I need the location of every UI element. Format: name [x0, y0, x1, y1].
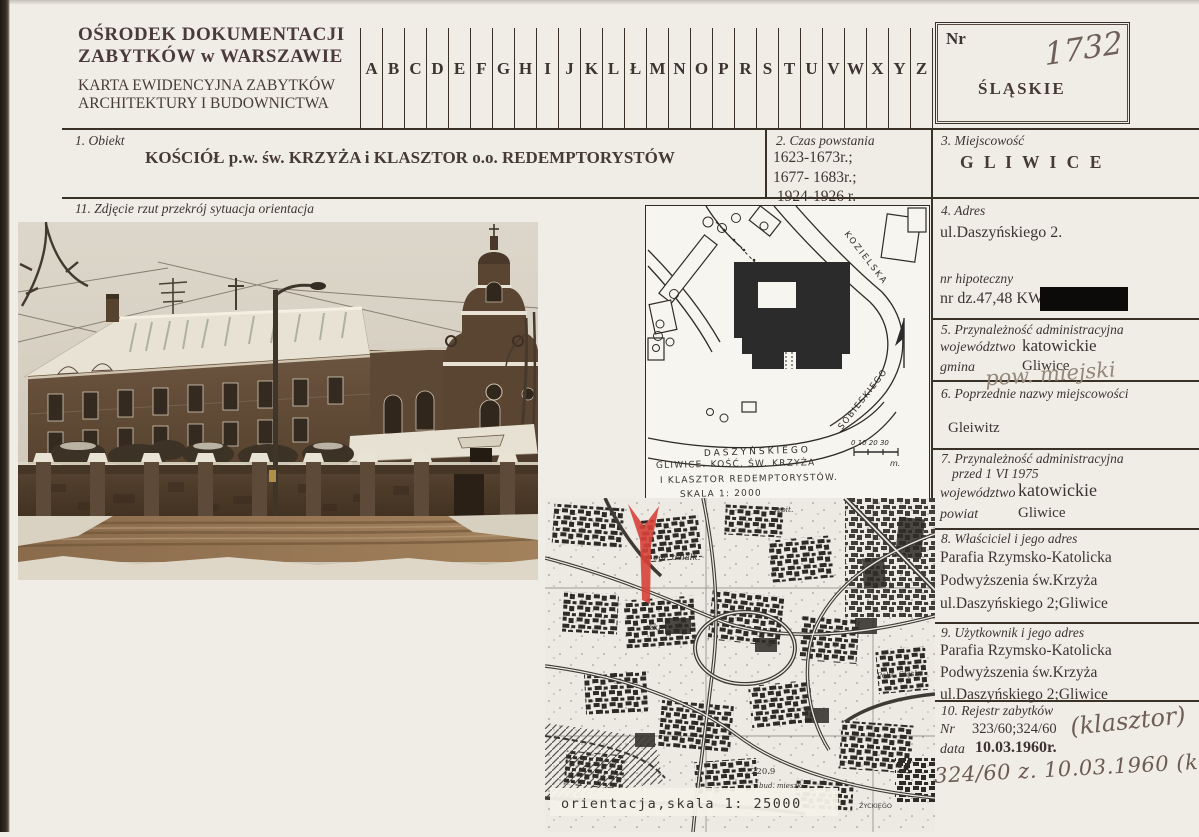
handwritten-kosciol-note: 324/60 z. 10.03.1960 (kościół) [934, 746, 1199, 788]
nr-label: Nr [946, 29, 966, 49]
scale-unit-label: m. [890, 459, 900, 468]
alphabet-letter: R [734, 28, 756, 128]
site-plan-drawing: 0 10 20 30 m. KOZIELSKA DASZYŃSKIEGO SOB… [646, 206, 928, 499]
alphabet-letter: C [404, 28, 426, 128]
photo-church-winter [18, 222, 538, 580]
section1-label: 1. Obiekt [75, 133, 125, 149]
section2-label: 2. Czas powstania [776, 133, 875, 149]
gate-opening [454, 474, 484, 516]
rule-under-row1 [62, 197, 1199, 199]
plan-scale-bar: 0 10 20 30 m. [851, 439, 900, 468]
owner-line: Podwyższenia św.Krzyża [940, 569, 1112, 592]
voivodeship-label-s7: województwo [940, 486, 1015, 502]
alphabet-letter: M [646, 28, 668, 128]
alphabet-letter: J [558, 28, 580, 128]
map-label-hospital: szpit. [773, 505, 793, 514]
user-lines: Parafia Rzymsko-KatolickaPodwyższenia św… [940, 640, 1112, 706]
alphabet-letter: O [690, 28, 712, 128]
rule-under-header [62, 128, 1199, 130]
voivodeship-value-s5: katowickie [1022, 336, 1097, 356]
orientation-map: ogr. dzialk. szk. szpit. Polit. Śląska 2… [545, 498, 935, 832]
section6-label: 6. Poprzednie nazwy miejscowości [941, 386, 1128, 402]
date-range-line: 1924-1926 r. [773, 187, 857, 207]
card-type-line2: ARCHITEKTURY I BUDOWNICTWA [78, 95, 368, 113]
register-nr-value: 323/60;324/60 [972, 721, 1057, 738]
alphabet-letter: Z [910, 28, 933, 128]
card-number-box: Nr 1732 ŚLĄSKIE [935, 22, 1130, 124]
site-plan: 0 10 20 30 m. KOZIELSKA DASZYŃSKIEGO SOB… [645, 205, 930, 501]
section11-label: 11. Zdjęcie rzut przekrój sytuacja orien… [75, 201, 314, 217]
map-label-street: ŻYCKIEGO [859, 801, 892, 810]
facade-snow-ledge [443, 362, 538, 366]
user-line: Parafia Rzymsko-Katolicka [940, 640, 1112, 662]
map-label-school: szk. [645, 623, 661, 632]
user-line: Podwyższenia św.Krzyża [940, 662, 1112, 684]
scale-ticks-label: 0 10 20 30 [851, 439, 889, 447]
alphabet-letter: P [712, 28, 734, 128]
section2-dates: 1623-1673r.;1677- 1683r.; 1924-1926 r. [773, 148, 857, 207]
alphabet-letter: W [844, 28, 866, 128]
divider-s8-s9 [931, 622, 1199, 624]
oculus-window [486, 384, 502, 400]
map-label-allotments: ogr. dzialk. [653, 553, 700, 563]
handwritten-klasztor: (klasztor) [1069, 701, 1187, 741]
card-type-line1: KARTA EWIDENCYJNA ZABYTKÓW [78, 77, 368, 95]
address-value: ul.Daszyńskiego 2. [940, 224, 1062, 242]
mortgage-label: nr hipoteczny [940, 271, 1013, 287]
section4-label: 4. Adres [941, 203, 985, 219]
object-title: KOŚCIÓŁ p.w. św. KRZYŻA i KLASZTOR o.o. … [120, 148, 700, 168]
alphabet-index-strip: ABCDEFGHIJKLŁMNOPRSTUVWXYZ [360, 28, 933, 128]
tower-lantern [490, 236, 498, 250]
section9-label: 9. Użytkownik i jego adres [941, 625, 1084, 641]
org-line2: ZABYTKÓW w WARSZAWIE [78, 46, 368, 68]
alphabet-letter: F [470, 28, 492, 128]
section8-label: 8. Właściciel i jego adres [941, 531, 1077, 547]
alphabet-letter: N [668, 28, 690, 128]
alphabet-letter: B [382, 28, 404, 128]
redaction-box [1040, 287, 1128, 311]
street-label-daszynskiego: DASZYŃSKIEGO [704, 443, 811, 459]
alphabet-letter: U [800, 28, 822, 128]
header-org-block: OŚRODEK DOKUMENTACJI ZABYTKÓW w WARSZAWI… [78, 24, 368, 113]
district-label: powiat [940, 507, 978, 523]
alphabet-letter: S [756, 28, 778, 128]
divider-s6-s7 [931, 448, 1199, 450]
owner-line: ul.Daszyńskiego 2;Gliwice [940, 592, 1112, 615]
org-line1: OŚRODEK DOKUMENTACJI [78, 24, 368, 46]
alphabet-letter: T [778, 28, 800, 128]
divider-s7-s8 [931, 528, 1199, 530]
divider-s1-s2 [765, 128, 767, 197]
orientation-map-drawing: ogr. dzialk. szk. szpit. Polit. Śląska 2… [545, 498, 935, 832]
locality-value: G L I W I C E [960, 152, 1104, 173]
alphabet-letter: D [426, 28, 448, 128]
register-nr-label: Nr [940, 722, 955, 738]
voivodeship-value-s7: katowickie [1018, 480, 1097, 501]
alphabet-letter: G [492, 28, 514, 128]
alphabet-letter: E [448, 28, 470, 128]
alphabet-letter: I [536, 28, 558, 128]
alphabet-letter: X [866, 28, 888, 128]
plan-building-footprint [734, 262, 850, 369]
divider-s4-s5 [931, 318, 1199, 320]
district-value: Gliwice [1018, 505, 1065, 522]
tower-niche [486, 282, 502, 302]
chimney-cap [106, 294, 119, 299]
plan-caption-line2: I KLASZTOR REDEMPTORYSTÓW. [660, 471, 838, 486]
heritage-record-card: { "header": { "org_line1": "OŚRODEK DOKU… [0, 0, 1199, 832]
commune-label: gmina [940, 360, 975, 376]
plan-caption: GLIWICE. KOŚĆ. ŚW. KRZYŻA I KLASZTOR RED… [656, 456, 838, 499]
plan-caption-line1: GLIWICE. KOŚĆ. ŚW. KRZYŻA [656, 456, 816, 471]
scan-edge-top [0, 0, 1199, 5]
owner-line: Parafia Rzymsko-Katolicka [940, 546, 1112, 569]
register-date-label: data [940, 742, 965, 758]
section3-label: 3. Miejscowość [941, 133, 1024, 149]
alphabet-letter: K [580, 28, 602, 128]
register-date-value: 10.03.1960r. [975, 739, 1057, 757]
map-label-elevation2: 220.9 [751, 767, 775, 777]
photo-illustration [18, 222, 538, 580]
nr-value-handwritten: 1732 [1044, 25, 1124, 73]
alphabet-letter: Ł [624, 28, 646, 128]
alphabet-letter: L [602, 28, 624, 128]
section10-label: 10. Rejestr zabytków [941, 703, 1053, 719]
alphabet-letter: Y [888, 28, 910, 128]
map-caption: orientacja,skala 1: 25000 [561, 796, 802, 812]
date-range-line: 1623-1673r.; [773, 148, 857, 168]
previous-name-value: Gleiwitz [948, 420, 1000, 437]
owner-lines: Parafia Rzymsko-KatolickaPodwyższenia św… [940, 546, 1112, 615]
alphabet-letter: A [360, 28, 382, 128]
alphabet-letter: V [822, 28, 844, 128]
gable-snow-ledge [461, 311, 527, 315]
voivodeship-label-s5: województwo [940, 340, 1015, 356]
scan-edge-shadow [0, 0, 10, 832]
parcel-value: nr dz.47,48 KW [940, 290, 1043, 308]
voivodeship-stamp: ŚLĄSKIE [978, 79, 1066, 99]
street-label-sobieskiego: SOBIESKIEGO [836, 367, 890, 432]
date-range-line: 1677- 1683r.; [773, 168, 857, 188]
alphabet-letter: H [514, 28, 536, 128]
section7-label: 7. Przynależność administracyjna [941, 451, 1124, 467]
